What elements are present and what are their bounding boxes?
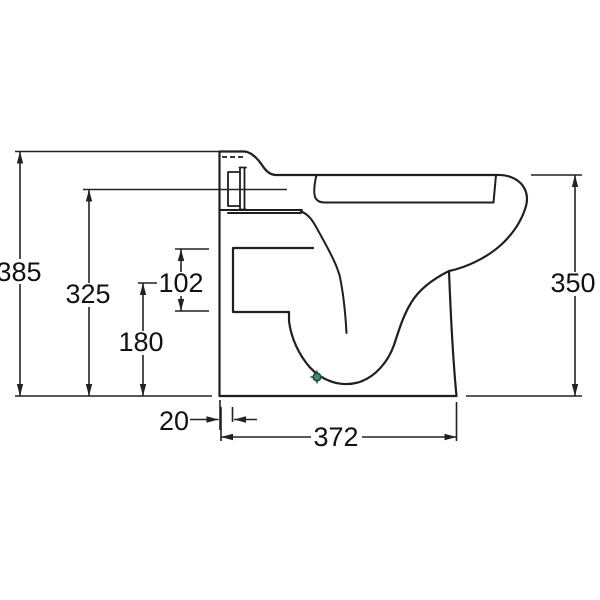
outlet-point-marker [311, 371, 324, 384]
dim-back-offset: 20 [159, 400, 257, 436]
dim-20-extension-ticks [220, 400, 233, 430]
dim-20-label: 20 [159, 406, 189, 436]
toilet-dimension-drawing: 385 325 180 102 350 20 372 [0, 0, 600, 600]
toilet-internal-lines [220, 175, 497, 333]
dim-lower-height: 180 [117, 283, 166, 396]
toilet-outline [220, 152, 527, 397]
dim-base-depth: 372 [221, 402, 457, 452]
toilet-body-outline [220, 152, 527, 397]
dim-180-label: 180 [118, 327, 163, 357]
dim-350-label: 350 [550, 268, 595, 298]
dim-102-label: 102 [158, 268, 203, 298]
outlet-marker-circle [313, 373, 321, 381]
dim-325-label: 325 [65, 279, 110, 309]
dim-372-label: 372 [313, 422, 358, 452]
dim-recess-height: 102 [157, 249, 209, 311]
dim-385-label: 385 [0, 257, 42, 287]
dim-front-height: 350 [466, 175, 598, 396]
fixing-bracket-detail [228, 168, 246, 210]
